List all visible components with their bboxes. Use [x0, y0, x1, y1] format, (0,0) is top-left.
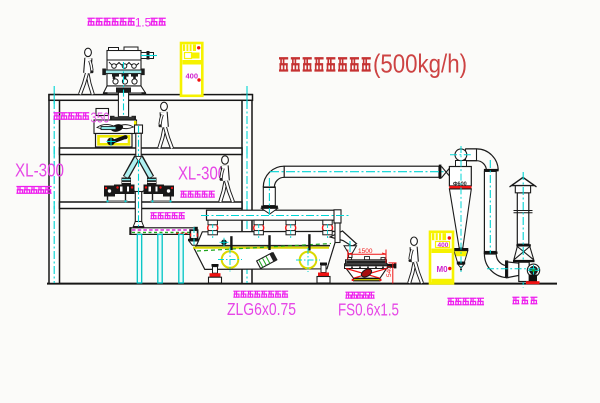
- svg-text:1.5: 1.5: [135, 18, 151, 30]
- svg-text:400: 400: [438, 242, 449, 249]
- svg-text:XL-300: XL-300: [178, 164, 226, 184]
- svg-text:FS0.6x1.5: FS0.6x1.5: [338, 300, 399, 320]
- svg-text:350: 350: [91, 110, 110, 127]
- svg-text:M0: M0: [437, 265, 449, 274]
- svg-text:1500: 1500: [358, 248, 373, 255]
- svg-text:XL-300: XL-300: [15, 161, 64, 181]
- svg-text:(500kg/h): (500kg/h): [373, 49, 467, 79]
- svg-text:400: 400: [186, 72, 199, 81]
- svg-text:ZLG6x0.75: ZLG6x0.75: [227, 299, 296, 319]
- svg-text:Φ600: Φ600: [453, 181, 467, 187]
- svg-text:540: 540: [386, 266, 393, 277]
